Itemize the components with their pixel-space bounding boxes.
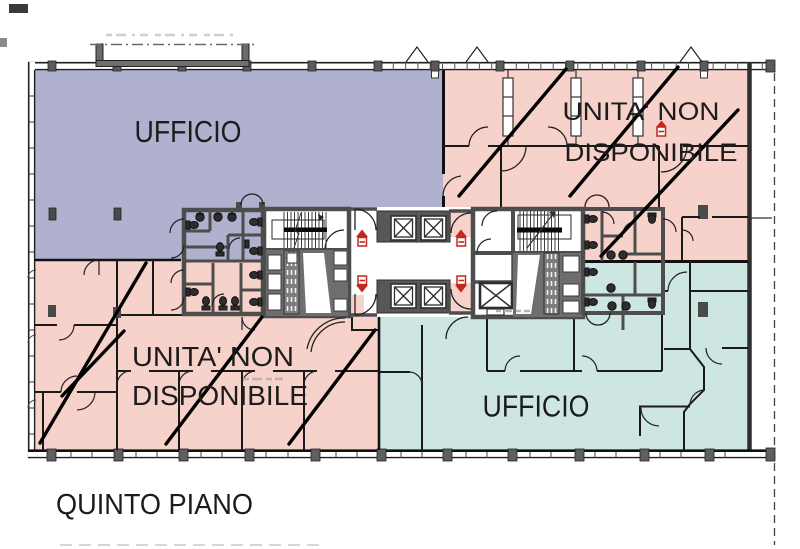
svg-text:DISPONIBILE: DISPONIBILE bbox=[565, 139, 738, 167]
svg-text:DISPONIBILE: DISPONIBILE bbox=[132, 380, 308, 411]
svg-text:UNITA' NON: UNITA' NON bbox=[563, 98, 720, 126]
svg-text:UNITA' NON: UNITA' NON bbox=[132, 341, 294, 372]
svg-text:QUINTO PIANO: QUINTO PIANO bbox=[56, 489, 253, 521]
svg-text:UFFICIO: UFFICIO bbox=[135, 114, 242, 149]
svg-text:UFFICIO: UFFICIO bbox=[483, 389, 590, 424]
